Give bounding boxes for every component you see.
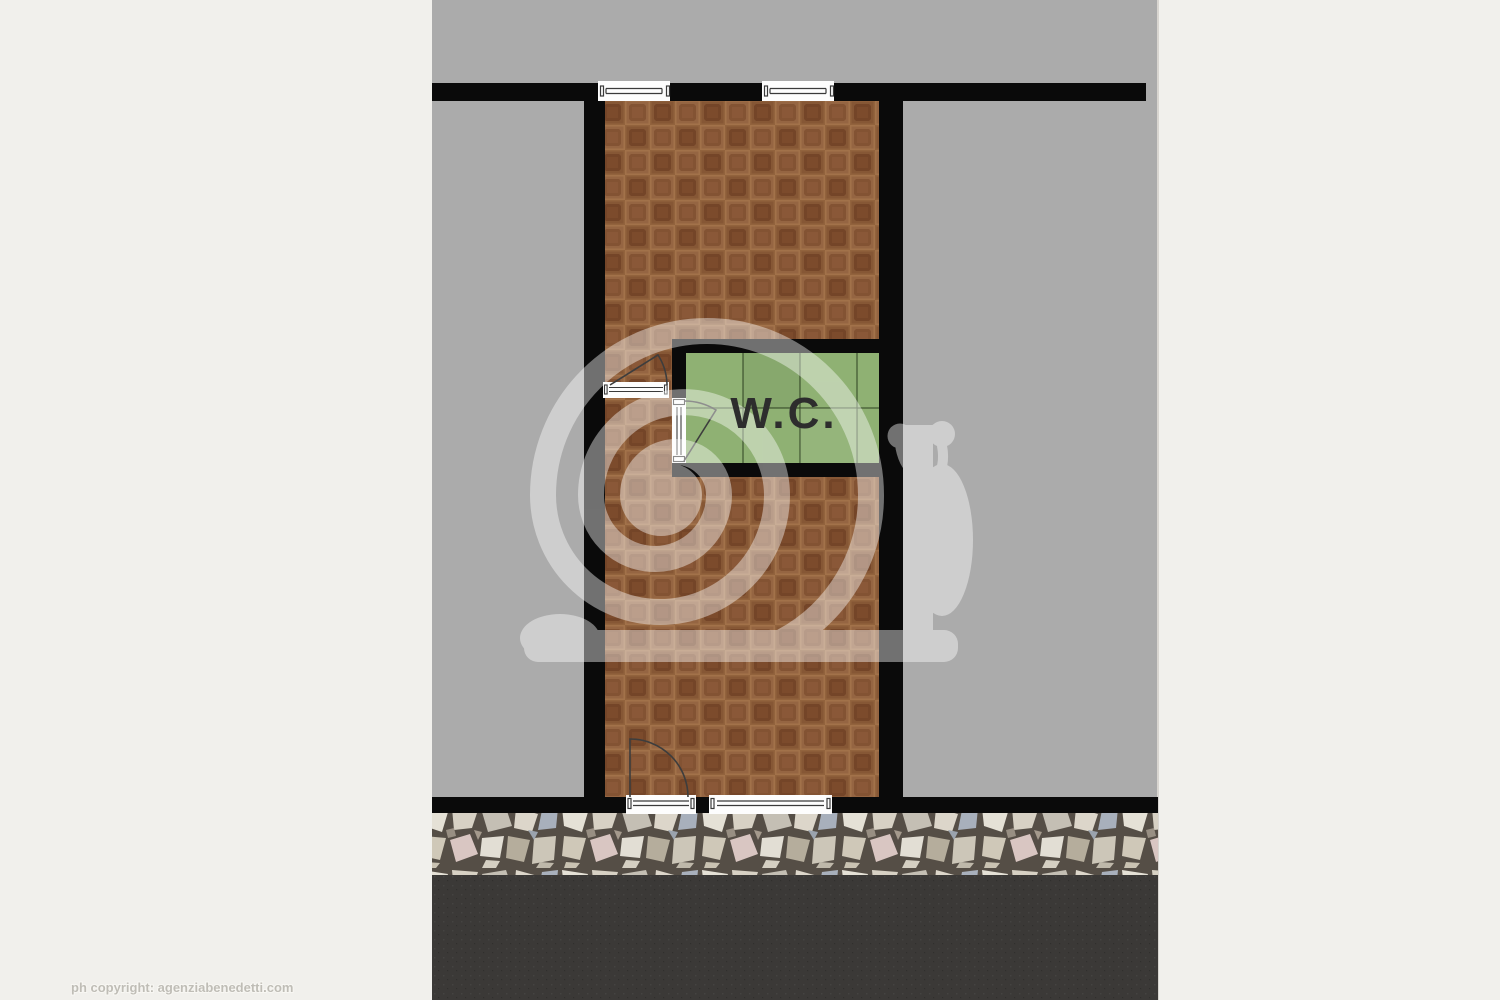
top-window-left <box>598 81 670 101</box>
entrance-door-threshold <box>626 795 696 814</box>
stone-walkway <box>432 813 1158 875</box>
floor-plan-page: W.C. ph copyright: agenziabenedetti.com <box>0 0 1500 1000</box>
snail-tail-bump <box>520 614 600 662</box>
wc-room-label: W.C. <box>730 389 837 438</box>
asphalt-texture <box>432 875 1158 1000</box>
upper-room-parquet-tint <box>605 101 879 339</box>
floor-plan-image: W.C. ph copyright: agenziabenedetti.com <box>0 0 1500 1000</box>
copyright-text: ph copyright: agenziabenedetti.com <box>71 980 293 995</box>
bottom-window <box>709 795 832 814</box>
snail-foot-flare <box>909 634 957 662</box>
snail-body-bulge <box>911 464 973 616</box>
top-window-right <box>762 81 834 101</box>
